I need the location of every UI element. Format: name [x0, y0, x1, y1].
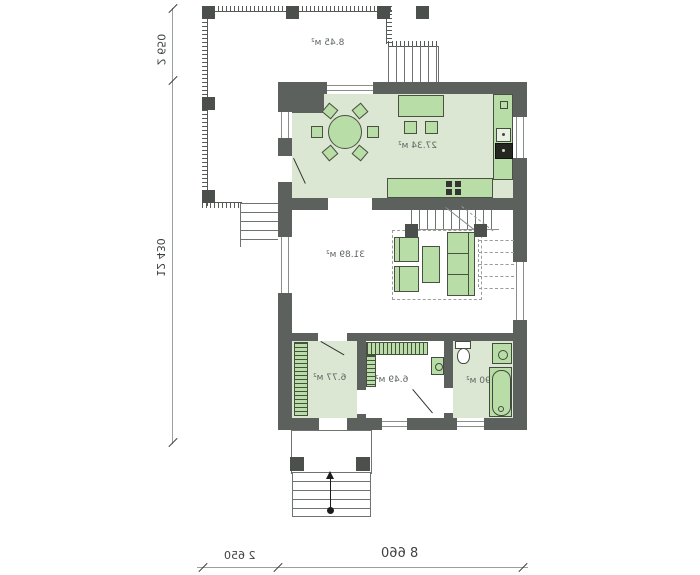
door-opening-entry — [319, 418, 347, 430]
dimension-line-left — [172, 8, 173, 444]
refrigerator-icon — [500, 101, 508, 109]
terrace-post — [202, 6, 215, 19]
door-opening-hall-bathroom — [444, 388, 453, 413]
area-label-living: 31.89 м² — [316, 248, 376, 261]
staircase-lower-run — [478, 229, 514, 287]
door-opening-terrace — [278, 156, 292, 182]
area-label-hall: 6.49 м² — [368, 373, 416, 386]
coffee-table — [422, 246, 440, 283]
terrace-post — [202, 190, 215, 203]
terrace-post — [416, 6, 429, 19]
window-left-kitchen — [278, 112, 292, 138]
area-label-terrace: 8.45 м² — [296, 36, 360, 50]
burner-icon — [455, 189, 461, 195]
window-right-living — [513, 262, 527, 320]
dim-label-house-length-text: 12 430 — [154, 238, 167, 277]
dim-label-terrace-width-text: 2 650 — [224, 549, 256, 562]
desk — [398, 95, 444, 117]
washbasin — [431, 357, 444, 375]
dimension-tick — [168, 4, 177, 13]
burner-icon — [446, 189, 452, 195]
window-left-living — [278, 237, 292, 293]
direction-arrow-head-icon — [326, 471, 334, 479]
area-label-living-text: 31.89 м² — [326, 250, 365, 260]
washing-machine-door-icon — [498, 350, 508, 360]
stair-tread — [479, 277, 514, 289]
oven — [495, 143, 513, 159]
burner-icon — [446, 181, 452, 187]
sink-drain-icon — [502, 133, 505, 136]
floor-plan: 2 650 12 430 2 650 8 660 8.45 м² — [0, 0, 700, 575]
door-leaf-hall-bathroom — [412, 389, 433, 413]
terrace-post — [286, 6, 299, 19]
window-right-kitchen — [513, 117, 527, 158]
window-bottom-bathroom — [457, 418, 484, 430]
desk-chair — [404, 121, 417, 134]
terrace-steps-right — [388, 46, 439, 82]
dining-chair — [311, 126, 323, 138]
dim-label-terrace-width: 2 650 — [208, 548, 272, 563]
dining-table — [328, 115, 362, 149]
oven-knob-icon — [502, 149, 505, 152]
stair-tread — [479, 253, 514, 265]
stair-post — [405, 224, 418, 237]
armchair-back — [399, 267, 400, 291]
burner-icon — [455, 181, 461, 187]
window-bottom-hall — [382, 418, 407, 430]
area-label-vestibule: 6.77 м² — [308, 371, 352, 384]
dim-label-house-width-text: 8 660 — [381, 546, 418, 561]
porch-post — [356, 457, 370, 471]
door-opening-living-vestibule — [318, 333, 347, 341]
kitchen-counter-bottom — [387, 178, 493, 198]
wardrobe-hall-top — [366, 342, 428, 355]
toilet-bowl — [457, 348, 470, 364]
dim-label-terrace-depth: 2 650 — [152, 20, 170, 78]
stair-tread — [479, 241, 514, 253]
opening-kitchen-living — [328, 198, 372, 210]
dim-label-house-length: 12 430 — [149, 218, 171, 296]
area-label-vestibule-text: 6.77 м² — [313, 373, 346, 383]
terrace-post — [377, 6, 390, 19]
kitchen-sink — [496, 128, 511, 142]
armchair — [394, 266, 419, 292]
dimension-tick — [168, 438, 177, 447]
area-label-terrace-text: 8.45 м² — [311, 38, 344, 48]
bathtub — [489, 367, 512, 417]
stair-post — [474, 224, 487, 237]
porch-post — [290, 457, 304, 471]
stair-tread — [479, 265, 514, 277]
wall-kitchen-living — [292, 198, 513, 210]
sofa — [447, 232, 475, 296]
cooktop-burners — [446, 181, 464, 196]
direction-arrow-start-dot — [327, 507, 334, 514]
dining-chair — [367, 126, 379, 138]
area-label-kitchen-text: 27.34 м² — [398, 141, 437, 151]
area-label-kitchen: 27.34 м² — [388, 139, 448, 152]
dim-label-house-width: 8 660 — [358, 545, 442, 562]
door-opening-vestibule-hall — [357, 390, 366, 414]
terrace-post — [202, 97, 215, 110]
sofa-cushion-line — [448, 274, 469, 275]
window-top-kitchen — [327, 82, 373, 94]
terrace-steps-left — [240, 203, 280, 247]
dim-label-terrace-depth-text: 2 650 — [155, 33, 168, 65]
sofa-back — [468, 233, 474, 295]
desk-chair — [425, 121, 438, 134]
washbasin-bowl-icon — [435, 363, 443, 371]
washing-machine — [492, 343, 512, 364]
sofa-cushion-line — [448, 253, 469, 254]
armchair — [394, 237, 419, 262]
bathtub-drain-icon — [498, 406, 504, 412]
area-label-hall-text: 6.49 м² — [375, 375, 408, 385]
armchair-back — [399, 238, 400, 261]
direction-arrow-line — [330, 477, 331, 510]
dimension-line-bottom — [197, 567, 528, 568]
wardrobe-vestibule — [294, 342, 308, 416]
